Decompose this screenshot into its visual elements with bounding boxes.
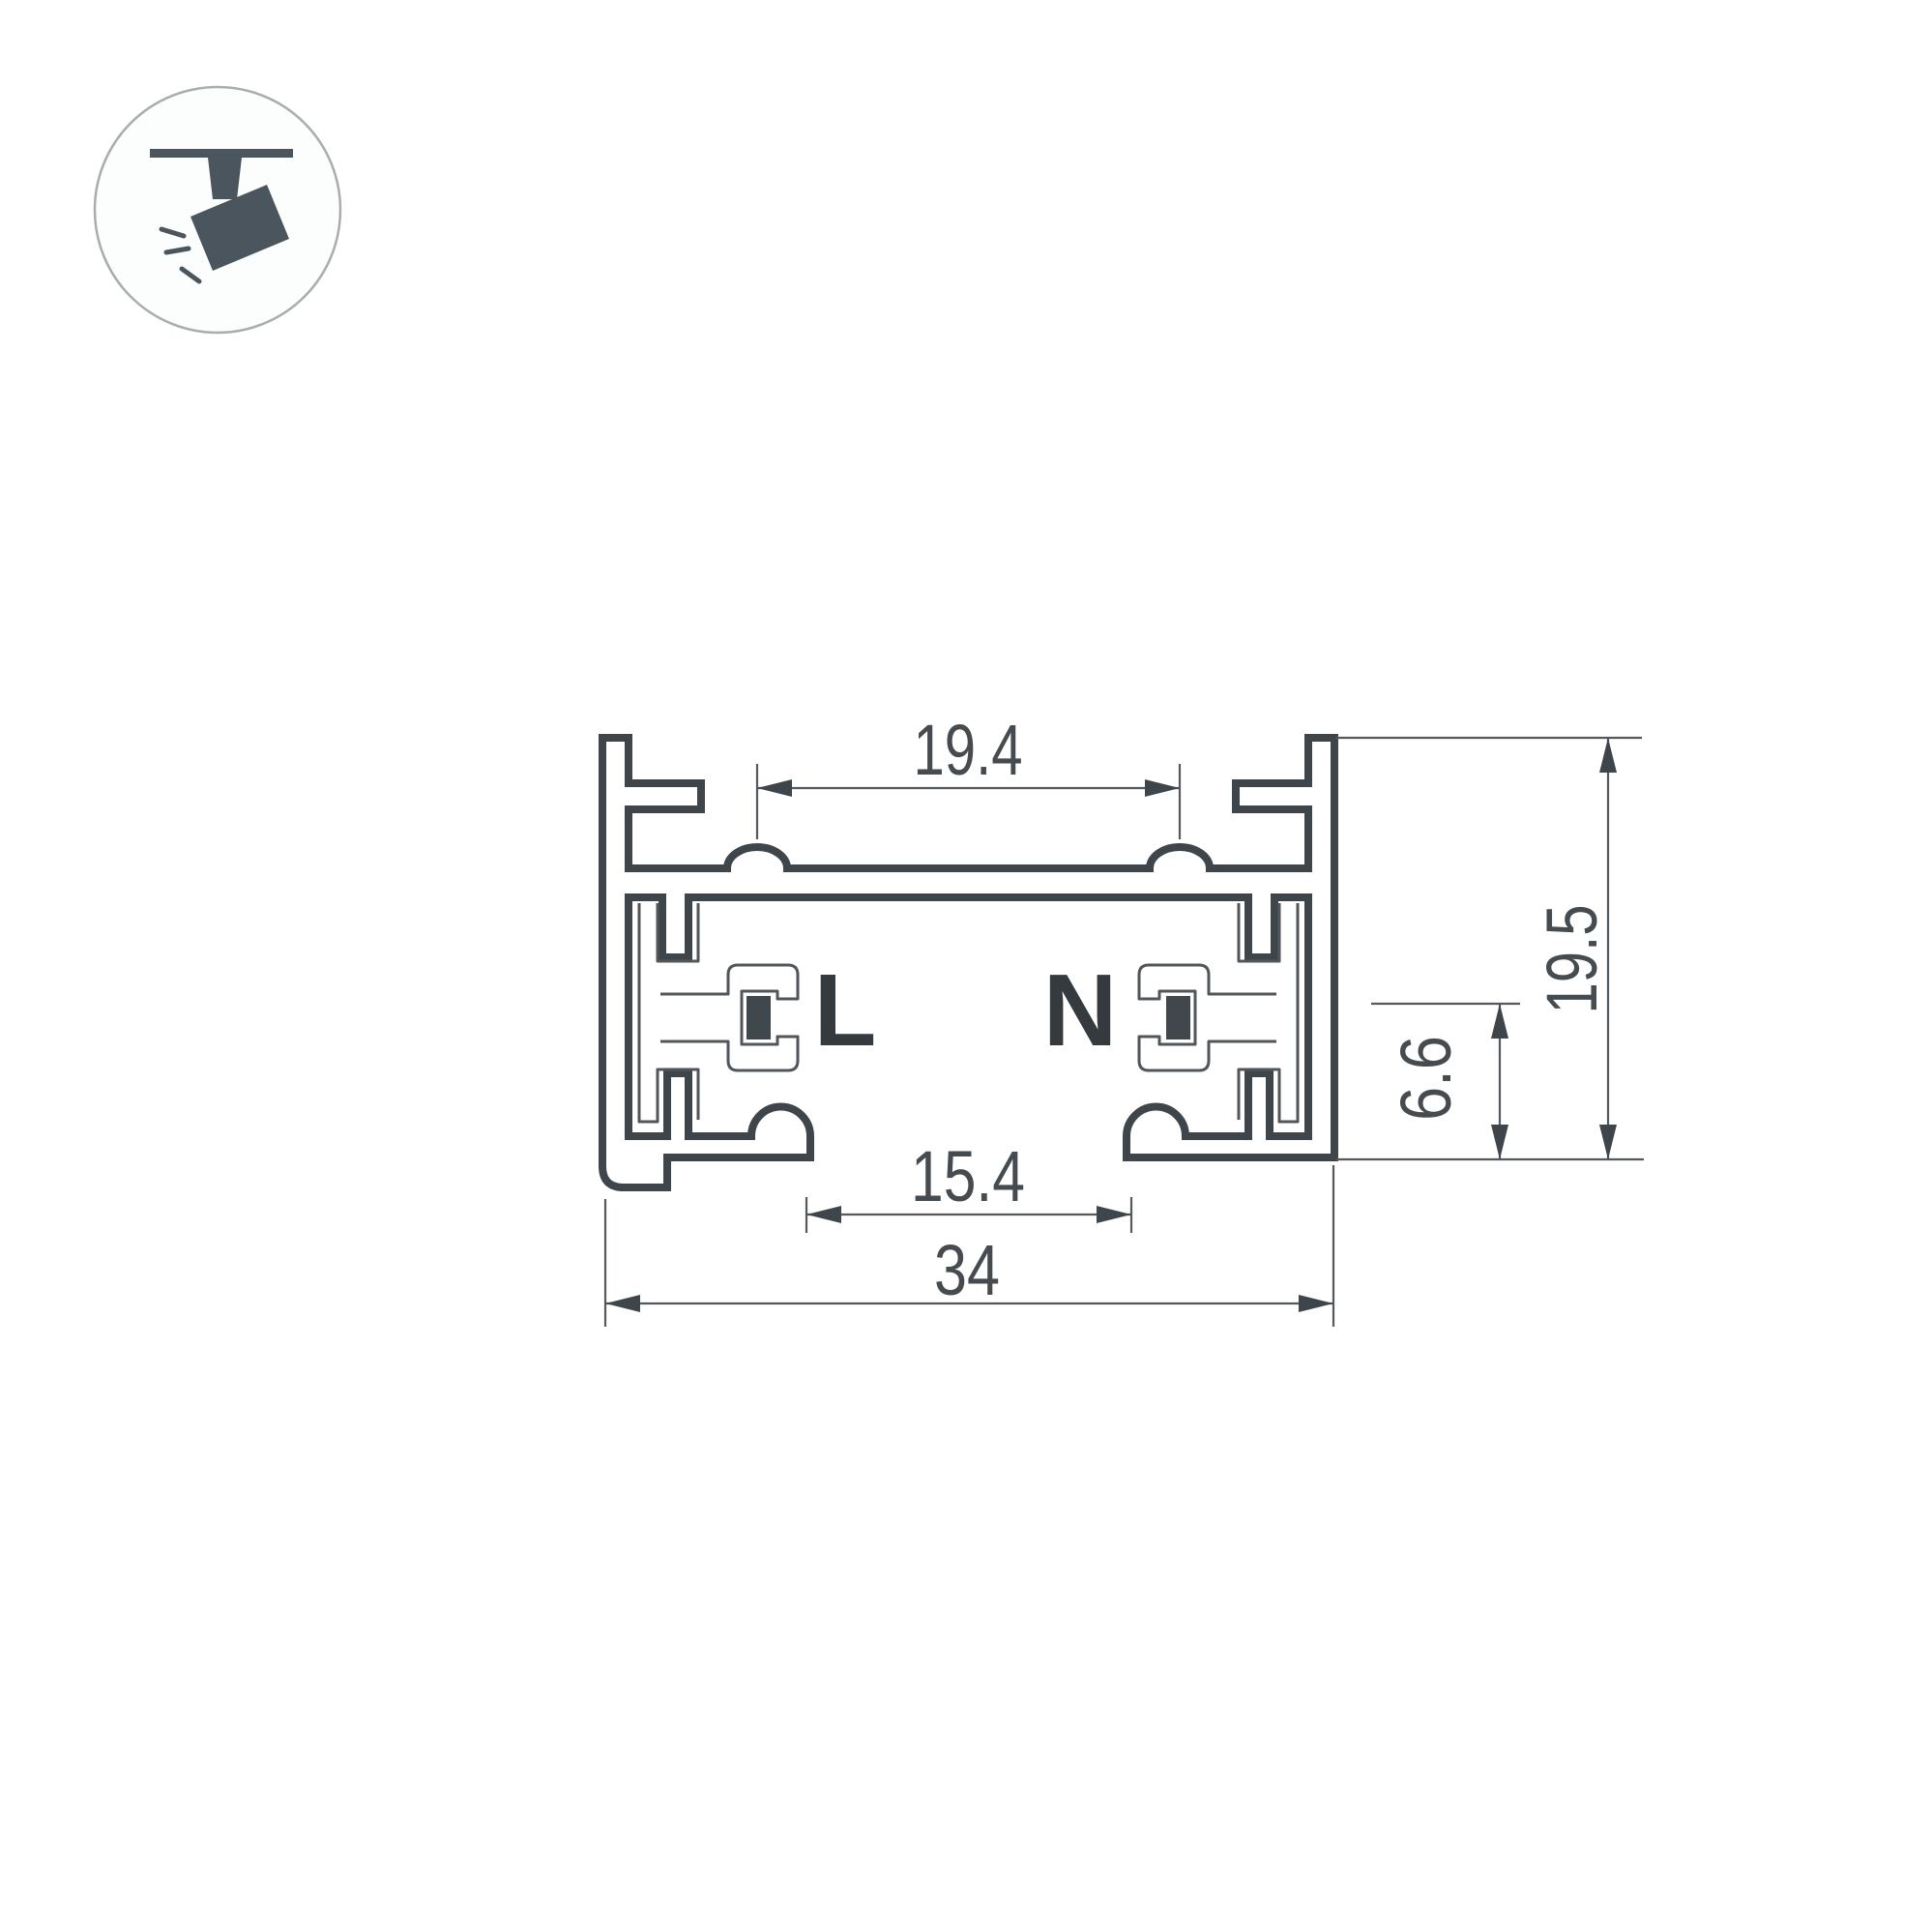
right-insulator-pocket [1139, 965, 1276, 1070]
drawing-canvas: L N 19.4 15.4 34 19 [0, 0, 1932, 1932]
technical-drawing: L N 19.4 15.4 34 19 [0, 0, 1932, 1932]
arrow-left-icon [605, 1295, 640, 1312]
dimension-bottom-opening: 15.4 [806, 1136, 1131, 1233]
arrow-left-icon [806, 1206, 841, 1223]
dimension-value: 6.6 [1386, 1036, 1466, 1121]
neutral-conductor [1166, 996, 1190, 1039]
arrow-right-icon [1145, 779, 1180, 797]
profile-cross-section: L N [602, 738, 1334, 1187]
dimension-value: 19.4 [914, 710, 1023, 790]
dimension-conductor-height: 6.6 [1371, 1004, 1520, 1159]
arrow-up-icon [1599, 738, 1617, 773]
arrow-down-icon [1599, 1125, 1617, 1159]
arrow-left-icon [757, 779, 792, 797]
dimension-overall-height: 19.5 [1336, 738, 1644, 1159]
dimension-value: 34 [934, 1230, 1000, 1310]
live-conductor [746, 996, 771, 1039]
arrow-right-icon [1097, 1206, 1131, 1223]
arrow-right-icon [1299, 1295, 1333, 1312]
icon-ceiling-bar [150, 149, 293, 158]
dimension-value: 19.5 [1532, 905, 1612, 1014]
icon-stem [208, 158, 242, 199]
profile-outline [602, 738, 1334, 1187]
live-label: L [814, 953, 877, 1068]
left-insulator-pocket [660, 965, 798, 1070]
arrow-up-icon [1491, 1004, 1508, 1039]
ceiling-track-spotlight-icon [95, 87, 340, 333]
arrow-down-icon [1491, 1125, 1508, 1159]
neutral-label: N [1043, 953, 1118, 1068]
dimension-value: 15.4 [911, 1136, 1025, 1216]
dimension-inner-top-width: 19.4 [757, 710, 1180, 839]
